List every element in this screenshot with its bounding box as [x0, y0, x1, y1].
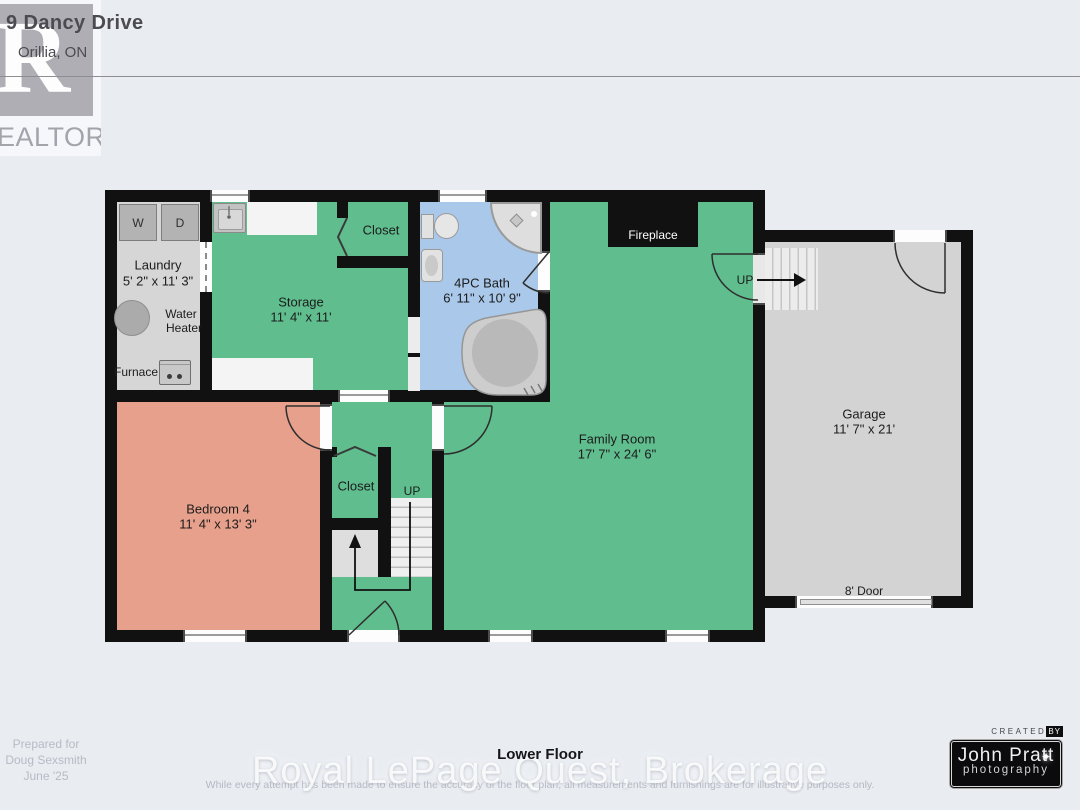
floor-plan-page: R REALTOR® 9 Dancy Drive Orillia, ON	[0, 0, 1080, 810]
storage-name: Storage	[278, 295, 324, 310]
stairs-up-flight	[390, 498, 432, 577]
storage-counter-pad	[247, 202, 317, 235]
up-stairs-label: UP	[404, 484, 421, 498]
window-hall-interior	[338, 390, 390, 402]
created-by-row: CREATEDBY	[949, 727, 1063, 738]
storage-dims: 11' 4" x 11'	[270, 310, 331, 325]
door-gap-garage-entry	[893, 230, 947, 242]
garage-stairs	[765, 248, 818, 310]
water-heater-label-2: Heater	[166, 321, 202, 335]
bath-wall-segment-2	[408, 357, 420, 391]
family-room-name: Family Room	[579, 432, 656, 447]
fireplace-label: Fireplace	[628, 228, 677, 242]
window-family-bottom-1	[488, 630, 533, 642]
door-gap-family-garage	[753, 253, 765, 305]
storage-lower-pad	[212, 358, 313, 390]
wall-hall-closet-jamb	[332, 447, 337, 457]
dryer: D	[161, 204, 199, 241]
floor-title: Lower Floor	[497, 746, 583, 763]
bath-wall-segment-1	[408, 317, 420, 353]
realtor-wordmark: REALTOR®	[0, 122, 101, 153]
bedroom4-dims: 11' 4" x 13' 3"	[179, 517, 257, 532]
prepared-line2: Doug Sexsmith	[0, 752, 92, 768]
prepared-line3: June '25	[0, 768, 92, 784]
water-heater	[114, 300, 150, 336]
prepared-line1: Prepared for	[0, 736, 92, 752]
closet-upper-label: Closet	[363, 223, 400, 238]
up-to-garage-label: UP	[737, 273, 754, 287]
garage-door-label: 8' Door	[845, 584, 883, 598]
address-line1: 9 Dancy Drive	[6, 12, 144, 35]
wall-closet-upper-bottom	[337, 256, 420, 268]
family-room-dims: 17' 7" x 24' 6"	[578, 447, 657, 462]
laundry-dims: 5' 2" x 11' 3"	[123, 274, 193, 289]
laundry-name: Laundry	[135, 258, 182, 273]
lens-flare-icon: ✦	[1041, 750, 1051, 764]
door-gap-bath	[538, 251, 550, 292]
garage-dims: 11' 7" x 21'	[833, 422, 895, 437]
window-bath-top	[438, 190, 487, 202]
window-family-bottom-2	[665, 630, 710, 642]
window-storage-top	[210, 190, 250, 202]
laundry-sink	[213, 203, 246, 233]
photographer-credit: CREATEDBY John Pratt photography ✦	[949, 727, 1063, 789]
door-gap-hall-exterior	[347, 630, 400, 642]
toilet-bowl	[434, 213, 459, 239]
water-heater-label-1: Water	[165, 307, 197, 321]
header-divider	[0, 76, 1080, 77]
dryer-label: D	[176, 216, 185, 230]
bath-dims: 6' 11" x 10' 9"	[443, 291, 521, 306]
furnace-unit	[159, 360, 191, 385]
created-by-chip: BY	[1046, 726, 1063, 737]
studio-subtitle: photography	[950, 764, 1062, 776]
toilet-tank	[421, 214, 434, 239]
created-by-prefix: CREATED	[991, 727, 1046, 736]
door-gap-hall-family	[432, 404, 444, 451]
john-pratt-logo: John Pratt photography ✦	[949, 739, 1063, 789]
window-bedroom-bottom	[183, 630, 247, 642]
opening-laundry-storage	[200, 242, 212, 292]
wall-stair-divider	[378, 447, 391, 577]
prepared-for-block: Prepared for Doug Sexsmith June '25	[0, 736, 92, 784]
pedestal-sink	[421, 249, 443, 282]
stairs-landing	[332, 530, 378, 577]
address-line2: Orillia, ON	[18, 44, 87, 61]
wall-closet-upper-jamb	[337, 202, 348, 218]
door-gap-bedroom	[320, 404, 332, 451]
closet-hall-label: Closet	[338, 479, 375, 494]
washer: W	[119, 204, 157, 241]
wall-laundry-divider	[200, 202, 212, 390]
wall-left	[105, 190, 117, 642]
wall-garage-right	[961, 230, 973, 608]
washer-label: W	[132, 216, 143, 230]
bedroom4-name: Bedroom 4	[186, 502, 250, 517]
bath-name: 4PC Bath	[454, 276, 510, 291]
garage-name: Garage	[842, 407, 885, 422]
furnace-label: Furnace	[114, 365, 158, 379]
